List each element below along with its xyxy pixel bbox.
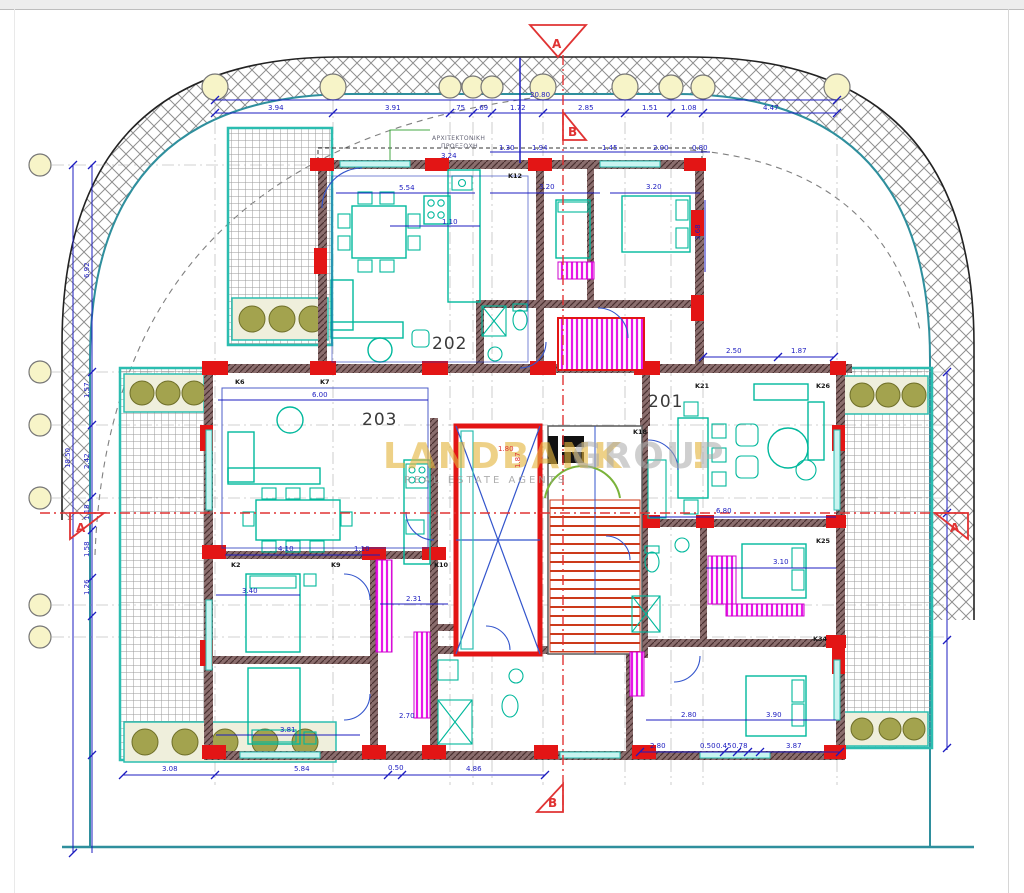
section-letter: A: [950, 521, 960, 535]
dimension-label: .69: [477, 104, 488, 112]
dimension-label: 6.92: [83, 262, 91, 278]
dimension-label: 1.10: [354, 545, 370, 553]
dimension-label: 1.87: [791, 347, 807, 355]
column-id: K12: [508, 172, 522, 180]
dimension-label: 0.45: [716, 742, 732, 750]
dimension-label: 2.80: [650, 742, 666, 750]
watermark-brand-mark: !: [690, 436, 706, 477]
dimension-label: 1.45: [602, 144, 618, 152]
dimension-label: 1.10: [442, 218, 458, 226]
dimension-label: 6.80: [716, 507, 732, 515]
balcony-left: [120, 368, 208, 760]
section-letter: A: [552, 37, 562, 51]
dimension-label: 2.31: [406, 595, 422, 603]
dimension-label: 2.00: [653, 144, 669, 152]
dimension-label: 1.30: [499, 144, 515, 152]
dimension-label: 6.00: [312, 391, 328, 399]
dimension-label: 0.80: [692, 144, 708, 152]
dimension-label: 3.08: [162, 765, 178, 773]
dimension-label: 3.81: [280, 726, 296, 734]
balcony-right: [838, 368, 932, 748]
dimension-label: 1.57: [83, 382, 91, 398]
dimension-label: 4.47: [763, 104, 779, 112]
dimension-label: 2.70: [399, 712, 415, 720]
dimension-label: 18.50: [64, 448, 72, 468]
greek-note: ΠΡΟΕΞΟΧΗ: [441, 143, 478, 150]
dimension-label: 0.50: [388, 764, 404, 772]
dimension-label: 1.87: [514, 452, 522, 468]
dimension-label: 1.51: [642, 104, 658, 112]
dimension-label: 3.94: [268, 104, 284, 112]
watermark-tagline: REAL ESTATE AGENTS: [404, 475, 567, 486]
apartment-number: 202: [432, 334, 467, 354]
dimension-label: 2.80: [681, 711, 697, 719]
apartment-number: 203: [362, 410, 397, 430]
section-letter: A: [76, 521, 86, 535]
dimension-label: 1.80: [498, 445, 514, 453]
column-id: K18: [633, 428, 648, 436]
dimension-label: 5.84: [294, 765, 310, 773]
section-letter: B: [548, 796, 557, 810]
dimension-label: 3.24: [441, 152, 457, 160]
column-id: K6: [235, 378, 245, 386]
top-margin-strip: [0, 0, 1024, 9]
dimension-label: 2.85: [578, 104, 594, 112]
dimension-label: 5.54: [399, 184, 415, 192]
dimension-label: 2.42: [83, 453, 91, 469]
floor-plan-page: LANDBANK GROUP ! REAL ESTATE AGENTS 20.8…: [0, 0, 1024, 893]
dimension-label: 1.94: [532, 144, 548, 152]
dimension-label: 1.26: [83, 579, 91, 595]
dimension-label: 3.40: [242, 587, 258, 595]
section-letter: B: [568, 125, 577, 139]
column-id: K34: [813, 635, 828, 643]
dimension-label: 4.86: [466, 765, 482, 773]
dimension-label: 3.91: [385, 104, 401, 112]
dimension-label: .75: [454, 104, 465, 112]
dimension-label: 20.80: [530, 91, 550, 99]
column-id: K2: [231, 561, 241, 569]
column-id: K7: [320, 378, 330, 386]
dimension-label: 1.18: [83, 504, 91, 520]
dimension-label: 3.10: [773, 558, 789, 566]
dimension-label: 1.72: [510, 104, 526, 112]
dimension-label: 1.58: [83, 541, 91, 557]
greek-note: ΑΡΧΙΤΕΚΤΟΝΙΚΗ: [432, 135, 485, 142]
dimension-label: 3.20: [646, 183, 662, 191]
dimension-label: 0.50: [700, 742, 716, 750]
dimension-label: 3.87: [786, 742, 802, 750]
column-id: K10: [434, 561, 449, 569]
dimension-label: 1.08: [681, 104, 697, 112]
column-id: K21: [695, 382, 710, 390]
dimension-label: 3.20: [539, 183, 555, 191]
column-id: K9: [331, 561, 341, 569]
dimension-label: 3.90: [766, 711, 782, 719]
column-id: K26: [816, 382, 831, 390]
dimension-label: 4.10: [278, 545, 294, 553]
dimension-label: 3.68: [694, 224, 702, 240]
stair-upper-flight: [558, 318, 644, 370]
dimension-label: 2.50: [726, 347, 742, 355]
dimension-label: 0.78: [732, 742, 748, 750]
floor-plan-canvas: LANDBANK GROUP ! REAL ESTATE AGENTS 20.8…: [0, 0, 1024, 893]
column-id: K25: [816, 537, 831, 545]
apartment-number: 201: [648, 392, 683, 412]
